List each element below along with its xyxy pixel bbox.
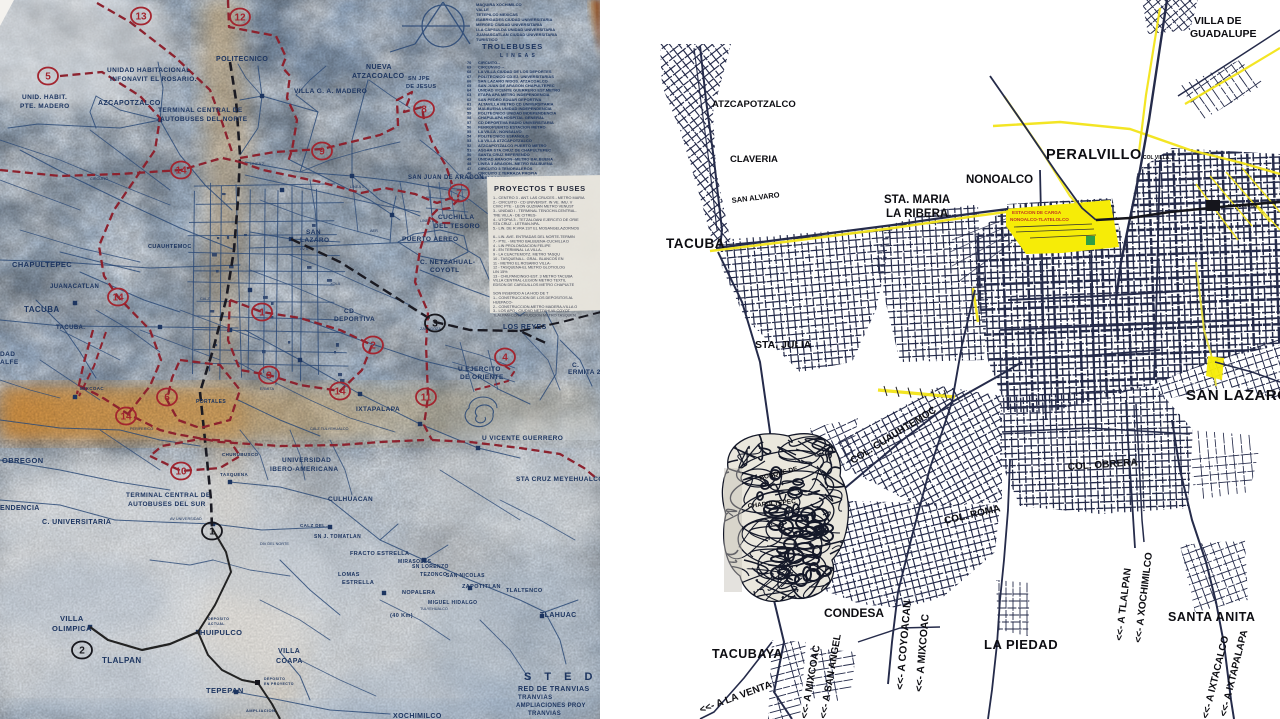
svg-text:U EJERCITO: U EJERCITO [458, 366, 501, 373]
svg-text:CLAVERIA: CLAVERIA [730, 154, 778, 165]
svg-text:AZCAPOTZALCO: AZCAPOTZALCO [98, 100, 161, 107]
svg-text:PERALVILLO: PERALVILLO [1046, 147, 1142, 163]
svg-text:ENDENCIA: ENDENCIA [0, 505, 40, 512]
svg-text:DEPOSITO: DEPOSITO [208, 617, 229, 621]
svg-text:C. UNIVERSITARIA: C. UNIVERSITARIA [42, 519, 111, 526]
svg-text:3: 3 [266, 371, 272, 382]
svg-text:IXTAPALAPA: IXTAPALAPA [356, 406, 400, 413]
svg-text:EDSON DE CARGUILLOS METRO CHAP: EDSON DE CARGUILLOS METRO CHAPULTE [493, 283, 575, 287]
svg-text:TRANVIAS: TRANVIAS [528, 711, 561, 717]
svg-text:COAPA: COAPA [276, 658, 303, 665]
svg-text:CUAUHTEMOC: CUAUHTEMOC [148, 244, 192, 250]
svg-text:TEPEPAN: TEPEPAN [206, 686, 244, 695]
svg-text:10: 10 [175, 467, 187, 478]
svg-text:TERMINAL CENTRAL DE: TERMINAL CENTRAL DE [158, 107, 243, 114]
svg-text:L I N E A S: L I N E A S [500, 53, 536, 59]
svg-text:U VICENTE GUERRERO: U VICENTE GUERRERO [482, 435, 563, 442]
svg-text:1: 1 [209, 527, 215, 538]
svg-text:PERIFERICO: PERIFERICO [130, 427, 153, 431]
svg-text:TEZONCO: TEZONCO [420, 572, 447, 578]
svg-text:SAN LAZARO: SAN LAZARO [1186, 387, 1280, 404]
svg-text:DEPORTIVA: DEPORTIVA [334, 316, 375, 323]
svg-text:EN PROYECTO: EN PROYECTO [264, 682, 294, 686]
svg-text:MIRASOLES: MIRASOLES [398, 559, 432, 565]
svg-text:VILLA G. A. MADERO: VILLA G. A. MADERO [294, 88, 367, 95]
svg-text:8: 8 [421, 105, 427, 116]
svg-text:UNID. HABIT.: UNID. HABIT. [22, 94, 67, 101]
svg-text:TLALPAN-CONSTRUCCION METRO TAS: TLALPAN-CONSTRUCCION METRO TASQUEN [493, 313, 576, 317]
svg-text:SAN NICOLAS: SAN NICOLAS [446, 573, 485, 579]
svg-text:LA PIEDAD: LA PIEDAD [984, 637, 1058, 652]
svg-text:STA. JULIA: STA. JULIA [755, 339, 812, 351]
svg-text:CULHUACAN: CULHUACAN [328, 496, 373, 503]
svg-text:5: 5 [45, 72, 51, 83]
svg-text:9: 9 [319, 147, 325, 158]
svg-text:LOS REYES: LOS REYES [503, 324, 547, 331]
svg-text:ATZCAPOTZALCO: ATZCAPOTZALCO [712, 99, 796, 110]
svg-text:AMPLIACION: AMPLIACION [246, 708, 275, 713]
svg-text:3: 3 [432, 319, 438, 330]
svg-text:MIXCOAC: MIXCOAC [80, 386, 104, 391]
svg-text:ERMITA: ERMITA [260, 387, 275, 391]
svg-text:MIGUEL HIDALGO: MIGUEL HIDALGO [428, 600, 477, 606]
svg-text:6: 6 [164, 393, 170, 404]
svg-text:12: 12 [234, 13, 246, 24]
svg-text:ZAPOTITLAN: ZAPOTITLAN [462, 584, 501, 590]
svg-text:POLITECNICO: POLITECNICO [216, 56, 268, 63]
svg-text:VILLA DE: VILLA DE [1194, 15, 1241, 27]
svg-text:AMPLIACIONES PROY: AMPLIACIONES PROY [516, 703, 586, 709]
svg-text:14: 14 [112, 293, 124, 304]
svg-text:GUADALUPE: GUADALUPE [1190, 28, 1257, 40]
svg-text:NOPALERA: NOPALERA [402, 590, 436, 596]
svg-text:SN JPE: SN JPE [408, 76, 430, 82]
svg-text:14: 14 [334, 387, 346, 398]
svg-text:COL VILLA...: COL VILLA... [1143, 155, 1174, 161]
svg-text:11: 11 [421, 393, 432, 404]
svg-text:TULYEHUALCO: TULYEHUALCO [420, 607, 448, 611]
svg-text:TROLEBUSES: TROLEBUSES [482, 42, 543, 51]
svg-text:C. NETZAHUAL-: C. NETZAHUAL- [420, 259, 475, 266]
svg-text:UNIDAD HABITACIONAL: UNIDAD HABITACIONAL [107, 67, 191, 74]
svg-text:5.- LIN. DE R.VRA 1ST EL MOSAN: 5.- LIN. DE R.VRA 1ST EL MOSANGELAZORNOS [493, 226, 580, 230]
svg-text:DIV DEL NORTE: DIV DEL NORTE [260, 542, 289, 546]
svg-text:CALZ DEL...: CALZ DEL... [300, 523, 330, 528]
svg-text:STA CRUZ MEYEHUALCO: STA CRUZ MEYEHUALCO [516, 476, 604, 483]
svg-text:AER: AER [370, 229, 378, 233]
svg-text:DE ORIENTE: DE ORIENTE [460, 374, 504, 381]
svg-text:MAGDALENA: MAGDALENA [1228, 203, 1258, 208]
svg-text:SAN: SAN [306, 229, 321, 236]
svg-text:RED DE TRANVIAS: RED DE TRANVIAS [518, 686, 590, 693]
svg-text:TERMINAL CENTRAL DE: TERMINAL CENTRAL DE [126, 492, 211, 499]
svg-text:CONDESA: CONDESA [824, 606, 884, 620]
svg-text:INFONAVIT EL ROSARIO.: INFONAVIT EL ROSARIO. [110, 76, 197, 83]
svg-text:AV UNIVERSIDAD: AV UNIVERSIDAD [170, 517, 202, 521]
svg-text:PROYECTOS T BUSES: PROYECTOS T BUSES [494, 184, 586, 193]
svg-text:LINEA 1: LINEA 1 [350, 185, 364, 189]
svg-text:CIRCUITO: CIRCUITO [90, 177, 108, 181]
svg-text:AUTOBUSES DEL SUR: AUTOBUSES DEL SUR [128, 501, 206, 508]
svg-text:ESTACION DE CARGA: ESTACION DE CARGA [1012, 210, 1062, 215]
svg-text:LAZARO: LAZARO [300, 237, 329, 244]
svg-text:NUEVA: NUEVA [366, 64, 392, 71]
svg-text:14: 14 [175, 166, 187, 177]
svg-text:14: 14 [120, 412, 132, 423]
svg-text:DEL TESORO: DEL TESORO [434, 223, 480, 230]
svg-text:PTE. MADERO: PTE. MADERO [20, 103, 70, 110]
svg-text:7: 7 [456, 189, 462, 200]
svg-text:CHAPULTEPEC: CHAPULTEPEC [12, 260, 72, 269]
svg-text:VILLA: VILLA [278, 648, 300, 655]
svg-text:UNIVERSIDAD: UNIVERSIDAD [282, 457, 331, 464]
svg-text:SANTA ANITA: SANTA ANITA [1168, 610, 1255, 624]
svg-text:DAD: DAD [0, 351, 15, 358]
svg-text:ATZACOALCO: ATZACOALCO [352, 73, 405, 80]
svg-text:ERMITA 2: ERMITA 2 [568, 369, 601, 376]
svg-text:TACUBA.: TACUBA. [56, 325, 85, 331]
svg-text:OLIMPICA: OLIMPICA [52, 624, 92, 633]
svg-text:NONOALCO: NONOALCO [966, 174, 1033, 186]
svg-text:CD: CD [344, 308, 354, 315]
svg-text:2: 2 [370, 341, 376, 352]
svg-text:LA RIBERA: LA RIBERA [886, 208, 948, 220]
svg-text:VILLA: VILLA [60, 614, 84, 623]
svg-text:IBERO-AMERICANA: IBERO-AMERICANA [270, 466, 338, 473]
svg-text:COYOTL: COYOTL [430, 267, 459, 274]
svg-text:AUTOBUSES DEL NORTE: AUTOBUSES DEL NORTE [160, 116, 248, 123]
svg-text:STA. MARIA: STA. MARIA [884, 194, 950, 206]
svg-text:TLALPAN: TLALPAN [102, 656, 142, 665]
svg-text:ESTRELLA: ESTRELLA [342, 580, 374, 586]
svg-text:TACUBAYA: TACUBAYA [712, 647, 783, 661]
svg-text:DE JESUS: DE JESUS [406, 84, 436, 90]
svg-text:TACUBA: TACUBA [24, 305, 60, 314]
svg-text:ACTUAL: ACTUAL [208, 622, 225, 626]
svg-text:CUCHILLA: CUCHILLA [438, 214, 474, 221]
svg-text:(40 Km): (40 Km) [390, 613, 413, 619]
svg-text:CALZ TULYEHUALCO: CALZ TULYEHUALCO [310, 427, 349, 431]
svg-text:4: 4 [502, 353, 508, 364]
svg-text:SN J. TOMATLAN: SN J. TOMATLAN [314, 534, 361, 540]
svg-text:HUIPULCO: HUIPULCO [200, 628, 242, 637]
svg-text:CHURUBUSCO: CHURUBUSCO [222, 452, 259, 457]
svg-text:JUANACATLAN: JUANACATLAN [50, 284, 99, 290]
svg-text:FRACTO ESTRELLA: FRACTO ESTRELLA [350, 551, 409, 557]
svg-text:TACUBA: TACUBA [666, 236, 725, 251]
svg-text:SAN JUAN DE ARAGON: SAN JUAN DE ARAGON [408, 175, 484, 181]
svg-text:NONOALCO-TLATELOLCO: NONOALCO-TLATELOLCO [1010, 217, 1069, 222]
svg-text:LOMAS: LOMAS [338, 572, 360, 578]
svg-text:S T E D: S T E D [524, 671, 598, 683]
svg-text:TLAHUAC: TLAHUAC [540, 612, 577, 619]
svg-text:ALFE: ALFE [0, 359, 19, 366]
svg-text:PORTALES: PORTALES [196, 399, 226, 405]
svg-text:1: 1 [259, 308, 265, 319]
svg-text:TRANVIAS: TRANVIAS [518, 695, 553, 701]
svg-text:PUERTO AEREO: PUERTO AEREO [402, 236, 458, 243]
svg-text:TLALTENCO: TLALTENCO [506, 588, 543, 594]
svg-text:CALZ: CALZ [200, 297, 210, 301]
svg-text:C.: C. [572, 362, 579, 369]
svg-text:OBREGON: OBREGON [2, 456, 44, 465]
svg-text:XOCHIMILCO: XOCHIMILCO [393, 713, 442, 719]
svg-text:DEPOSITO: DEPOSITO [264, 677, 285, 681]
svg-text:TAXQUENA: TAXQUENA [220, 472, 248, 477]
svg-text:2: 2 [79, 646, 85, 657]
svg-text:13: 13 [135, 12, 147, 23]
